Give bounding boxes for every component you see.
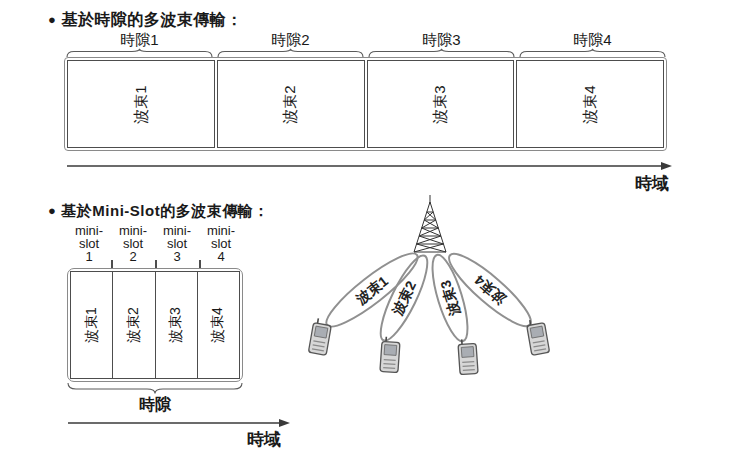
slot-section-title: ●基於時隙的多波束傳輸： (48, 10, 243, 31)
minislot-section-title-text: 基於Mini-Slot的多波束傳輸： (61, 202, 268, 219)
beam-label: 波束1 (83, 307, 101, 343)
beam-ellipse-label: 波束3 (437, 278, 463, 318)
minislot-header-line: 4 (199, 250, 243, 263)
slot-cell-2: 波束2 (217, 60, 365, 148)
minislot-diagram: 波束1 波束2 波束3 波束4 (67, 268, 243, 382)
beam-label: 波束4 (581, 85, 600, 123)
figure-canvas: ●基於時隙的多波束傳輸： 時隙1 時隙2 時隙3 時隙4 波束1 波束2 波束3… (0, 0, 740, 455)
slot-section-title-text: 基於時隙的多波束傳輸： (61, 11, 243, 28)
beam-label: 波束2 (281, 85, 300, 123)
minislot-header-3: mini- slot 3 (155, 224, 199, 263)
minislot-header-line: 3 (155, 250, 199, 263)
time-axis-label: 時域 (238, 428, 290, 451)
slot-diagram: 波束1 波束2 波束3 波束4 (64, 57, 667, 151)
beam-label: 波束3 (167, 307, 185, 343)
mobile-phone-icon (380, 336, 400, 372)
slot-cell-3: 波束3 (367, 60, 515, 148)
arrowhead-icon (279, 419, 290, 427)
beam-illustration: 波束1 波束2 波束3 波束4 (300, 192, 580, 392)
mobile-phone-icon (458, 338, 478, 374)
antenna-tower-icon (414, 195, 446, 252)
beam-label: 波束2 (125, 307, 143, 343)
time-axis-arrow (64, 159, 678, 173)
minislot-brace-label: 時隙 (67, 395, 243, 416)
minislot-header-4: mini- slot 4 (199, 224, 243, 263)
minislot-cell-1: 波束1 (71, 272, 113, 378)
bullet-icon: ● (48, 12, 56, 27)
beam-ellipse-label: 波束2 (389, 278, 420, 318)
beam-label: 波束3 (431, 85, 450, 123)
column-tick (111, 260, 113, 268)
slot-cell-4: 波束4 (516, 60, 664, 148)
time-axis-label: 時域 (628, 172, 676, 195)
column-tick (199, 260, 201, 268)
beam-ellipse-label: 波束1 (352, 273, 391, 308)
column-tick (155, 260, 157, 268)
minislot-header-2: mini- slot 2 (111, 224, 155, 263)
beam-ellipse-label: 波束4 (471, 272, 509, 308)
minislot-header-line: 1 (67, 250, 111, 263)
mobile-phone-icon (526, 318, 550, 356)
slot-cell-1: 波束1 (67, 60, 215, 148)
beam-label: 波束1 (131, 85, 150, 123)
minislot-cells: 波束1 波束2 波束3 波束4 (70, 271, 240, 379)
arrowhead-icon (661, 162, 672, 170)
mobile-phone-icon (308, 318, 332, 356)
minislot-cell-2: 波束2 (113, 272, 155, 378)
minislot-header-1: mini- slot 1 (67, 224, 111, 263)
bullet-icon: ● (48, 203, 56, 218)
minislot-cell-3: 波束3 (156, 272, 198, 378)
underbrace (67, 383, 243, 395)
minislot-header-line: 2 (111, 250, 155, 263)
minislot-section-title: ●基於Mini-Slot的多波束傳輸： (48, 202, 269, 221)
beam-label: 波束4 (209, 307, 227, 343)
minislot-cell-4: 波束4 (198, 272, 239, 378)
